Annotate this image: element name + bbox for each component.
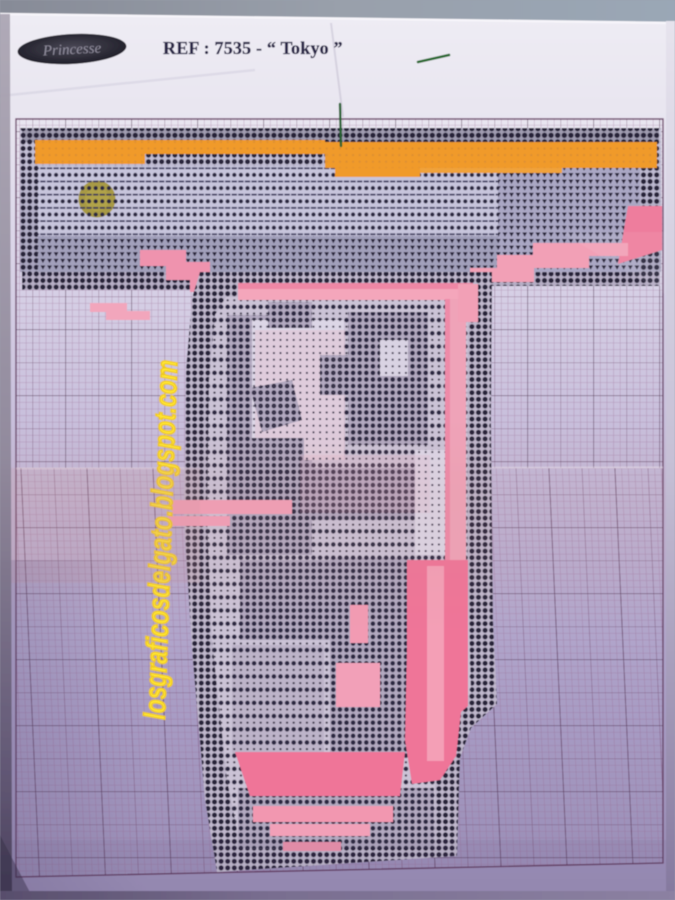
svg-text:REF : 7535 - “ Tokyo ”: REF : 7535 - “ Tokyo ” [163,38,343,58]
svg-text:Princesse: Princesse [42,40,102,59]
